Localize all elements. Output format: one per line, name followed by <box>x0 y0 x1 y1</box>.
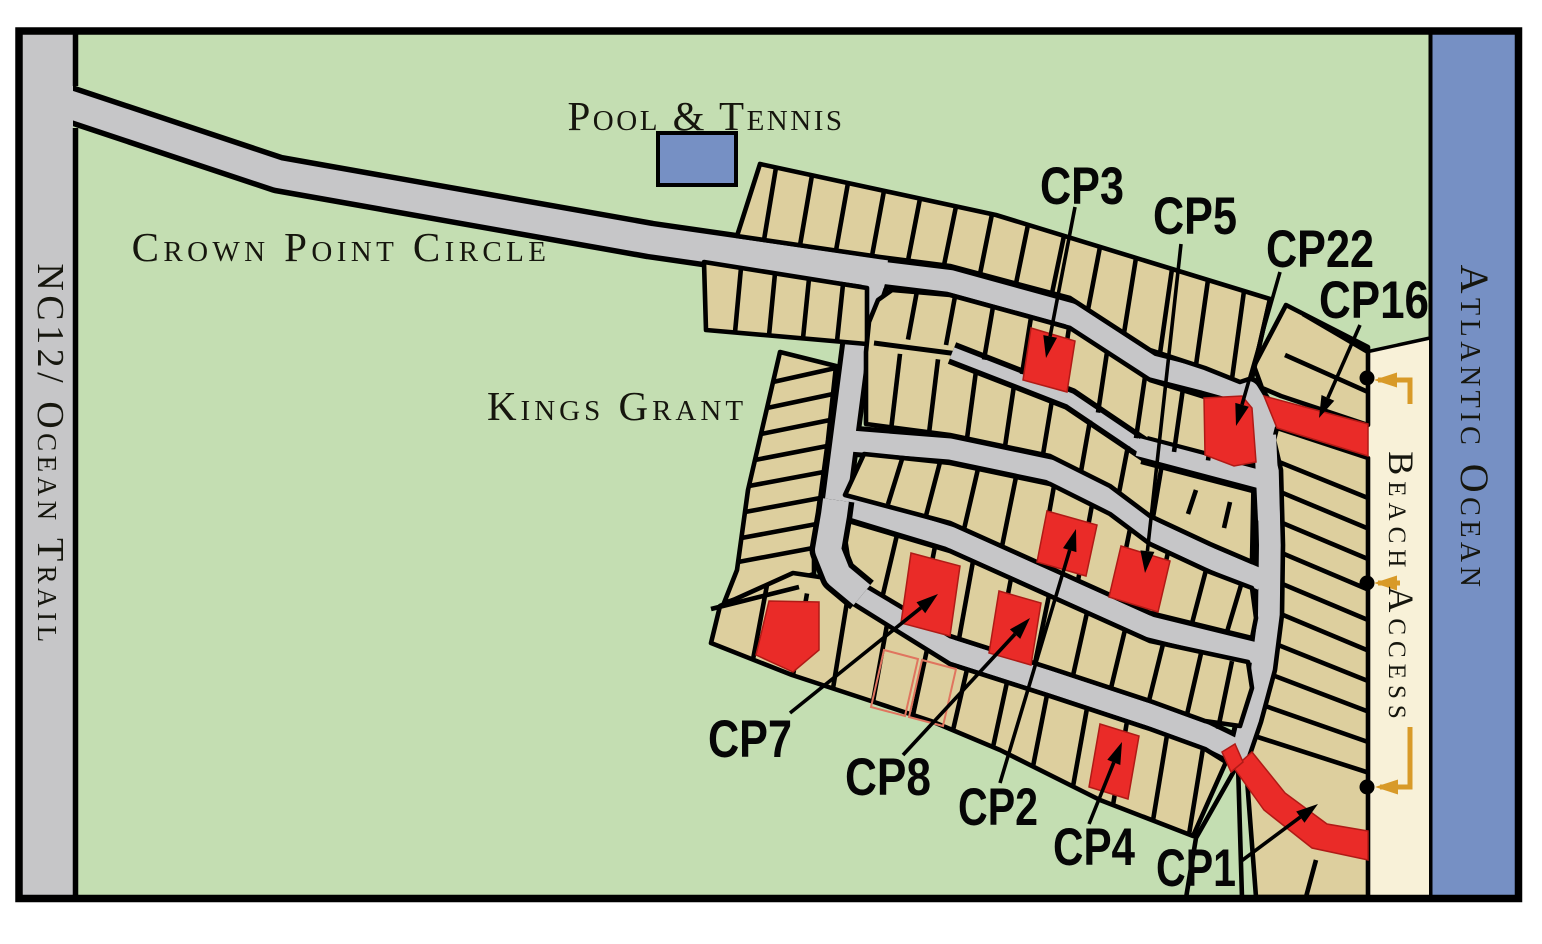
svg-text:CP2: CP2 <box>958 778 1038 837</box>
svg-text:Kings Grant: Kings Grant <box>487 383 747 429</box>
svg-text:CP3: CP3 <box>1040 157 1124 216</box>
svg-text:CP16: CP16 <box>1319 271 1429 330</box>
svg-text:Beach Access: Beach Access <box>1381 451 1421 725</box>
svg-text:Atlantic Ocean: Atlantic Ocean <box>1452 265 1497 592</box>
svg-text:CP1: CP1 <box>1156 839 1236 898</box>
svg-text:CP8: CP8 <box>845 748 931 807</box>
svg-text:NC12/ Ocean Trail: NC12/ Ocean Trail <box>29 263 71 646</box>
svg-text:CP5: CP5 <box>1153 187 1237 246</box>
svg-text:Crown Point Circle: Crown Point Circle <box>132 224 551 270</box>
svg-text:Pool & Tennis: Pool & Tennis <box>568 93 845 139</box>
svg-text:CP7: CP7 <box>708 710 792 769</box>
svg-text:CP4: CP4 <box>1053 818 1135 877</box>
